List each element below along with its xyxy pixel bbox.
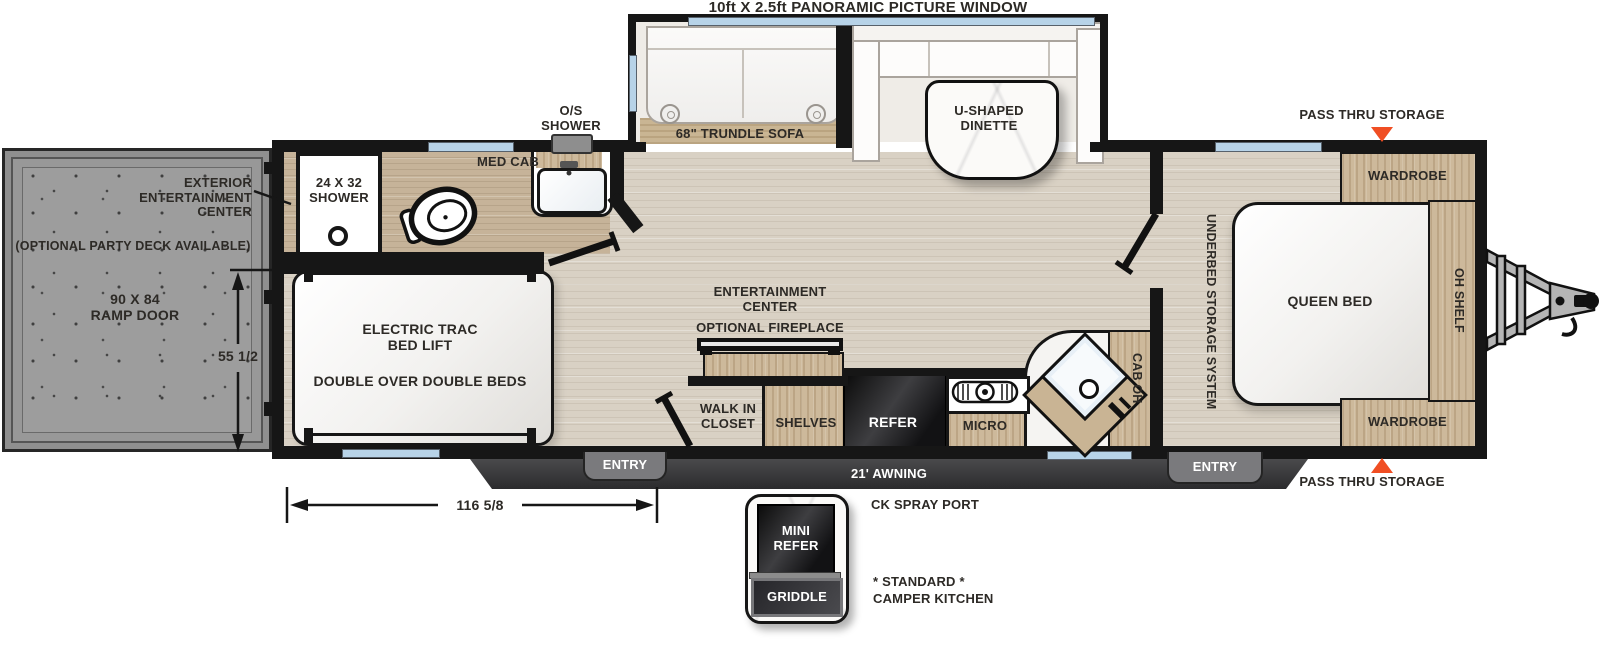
dim-arrow-left xyxy=(290,499,308,511)
slideout-wall-right xyxy=(1100,14,1108,148)
right-wall xyxy=(1475,140,1487,459)
wardrobe-top-label: WARDROBE xyxy=(1340,169,1475,184)
bedroom-wall-upper xyxy=(1150,150,1163,214)
dim-arrow-right xyxy=(636,499,654,511)
tv-foot xyxy=(700,349,712,355)
os-shower-fixture xyxy=(551,134,593,154)
ramp-height-dimension: 55 1/2 xyxy=(206,349,270,365)
slideout-stub-left xyxy=(628,142,646,152)
underbed-storage-label: UNDERBED STORAGE SYSTEM xyxy=(1192,212,1218,412)
double-beds-label: DOUBLE OVER DOUBLE BEDS xyxy=(292,374,548,390)
med-cab-label: MED CAB xyxy=(468,155,548,170)
cooktop xyxy=(946,376,1030,414)
os-shower-label: O/S SHOWER xyxy=(534,104,608,133)
panoramic-window-label: 10ft X 2.5ft PANORAMIC PICTURE WINDOW xyxy=(628,0,1108,17)
kitchen-bottom-window xyxy=(1047,451,1132,460)
ramp-hinge xyxy=(264,162,276,174)
shower-label: 24 X 32 SHOWER xyxy=(296,176,382,205)
hitch-icon xyxy=(1487,250,1599,350)
pass-thru-top-label: PASS THRU STORAGE xyxy=(1272,108,1472,123)
exterior-entertainment-label: EXTERIOR ENTERTAINMENT CENTER xyxy=(58,176,252,220)
bedroom-top-window xyxy=(1215,142,1322,152)
slideout-side-window xyxy=(629,55,637,112)
top-wall-window-left xyxy=(428,142,514,152)
kitchen-counter-back xyxy=(843,368,1025,376)
micro-label: MICRO xyxy=(946,419,1024,434)
double-bed xyxy=(292,270,554,446)
length-dimension: 116 5/8 xyxy=(438,498,522,514)
optional-fireplace-label: OPTIONAL FIREPLACE xyxy=(672,321,868,336)
awning-label: 21' AWNING xyxy=(470,467,1308,482)
sofa-grommet-right xyxy=(806,104,826,124)
ramp-door-label: 90 X 84 RAMP DOOR xyxy=(70,292,200,323)
party-deck-label: (OPTIONAL PARTY DECK AVAILABLE) xyxy=(8,239,258,253)
shower-drain xyxy=(328,226,348,246)
trundle-sofa-label: 68" TRUNDLE SOFA xyxy=(640,127,840,142)
slideout-stub-right xyxy=(1090,142,1108,152)
floorplan-canvas: 10ft X 2.5ft PANORAMIC PICTURE WINDOW EX… xyxy=(0,0,1600,645)
dinette-seam xyxy=(928,42,930,76)
corner-counter xyxy=(1024,330,1121,449)
griddle-label: GRIDDLE xyxy=(767,590,827,605)
sofa-seam-h xyxy=(648,48,840,50)
tv-foot xyxy=(828,349,840,355)
bathroom-bottom-wall xyxy=(284,252,544,274)
bottom-wall xyxy=(272,446,1487,459)
ramp-hinge xyxy=(264,290,276,304)
cab-oh-label: CAB OH xyxy=(1114,340,1144,416)
ramp-hinge xyxy=(264,402,276,416)
refrigerator xyxy=(843,374,947,450)
entertainment-center-label: ENTERTAINMENT CENTER xyxy=(690,285,850,314)
pass-thru-bottom-arrow-icon xyxy=(1371,458,1393,473)
dinette-bench-top xyxy=(852,40,1104,78)
griddle: GRIDDLE xyxy=(751,578,843,617)
pass-thru-bottom-label: PASS THRU STORAGE xyxy=(1272,475,1472,490)
bedroom-wall-lower xyxy=(1150,288,1163,446)
tv xyxy=(697,338,843,351)
garage-bottom-window xyxy=(342,449,440,458)
wardrobe-bottom-label: WARDROBE xyxy=(1340,415,1475,430)
vanity-sink xyxy=(537,168,607,214)
sofa-seam xyxy=(742,48,744,118)
dinette-label: U-SHAPED DINETTE xyxy=(925,104,1053,133)
shelves-label: SHELVES xyxy=(762,416,850,431)
slideout-window xyxy=(688,17,1095,26)
bed-rail-post xyxy=(527,428,536,444)
tv-screen xyxy=(701,342,839,346)
dinette-seam2 xyxy=(1048,42,1050,76)
bed-rail-post xyxy=(304,428,313,444)
queen-bed-label: QUEEN BED xyxy=(1232,294,1428,310)
bed-lift-label: ELECTRIC TRAC BED LIFT xyxy=(292,322,548,353)
camper-kitchen-note: * STANDARD * CAMPER KITCHEN xyxy=(873,574,1043,608)
bed-rail-bottom xyxy=(308,433,532,436)
oh-shelf-label: OH SHELF xyxy=(1436,252,1466,348)
mini-refer-label: MINI REFER xyxy=(773,524,818,553)
sofa-grommet-left xyxy=(660,104,680,124)
entertainment-base xyxy=(688,376,848,386)
dinette-bench-left xyxy=(852,40,880,162)
pass-thru-top-arrow-icon xyxy=(1371,127,1393,142)
refer-label: REFER xyxy=(843,415,943,431)
spray-port-label: CK SPRAY PORT xyxy=(855,498,995,513)
walk-in-closet-label: WALK IN CLOSET xyxy=(686,402,770,431)
mini-refer: MINI REFER xyxy=(757,504,835,574)
